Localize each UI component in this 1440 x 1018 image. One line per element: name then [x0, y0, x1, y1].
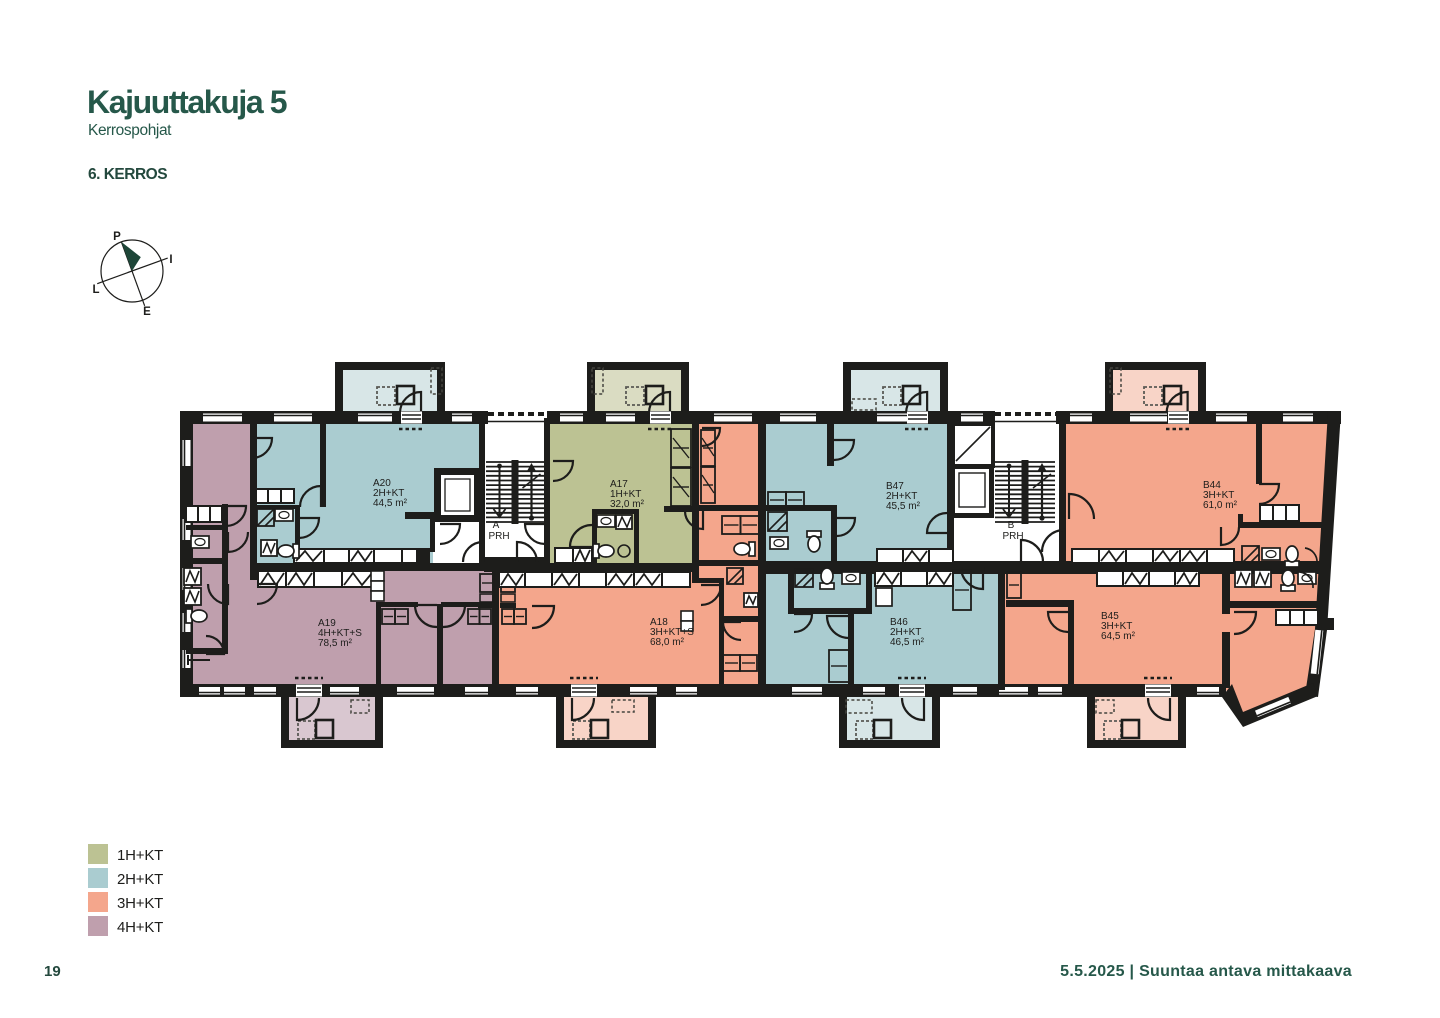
svg-text:L: L	[92, 284, 99, 296]
svg-text:I: I	[169, 254, 172, 266]
svg-text:Kerrospohjat: Kerrospohjat	[88, 122, 172, 139]
svg-text:5.5.2025 | Suuntaa antava mitt: 5.5.2025 | Suuntaa antava mittakaava	[1060, 963, 1352, 980]
svg-text:E: E	[143, 306, 151, 318]
svg-text:1H+KT: 1H+KT	[117, 847, 163, 864]
svg-text:46,5 m²: 46,5 m²	[890, 637, 925, 648]
svg-text:A: A	[493, 520, 500, 531]
svg-text:44,5 m²: 44,5 m²	[373, 498, 408, 509]
svg-text:78,5 m²: 78,5 m²	[318, 638, 353, 649]
svg-text:61,0 m²: 61,0 m²	[1203, 500, 1238, 511]
svg-text:3H+KT: 3H+KT	[117, 895, 163, 912]
svg-text:2H+KT: 2H+KT	[117, 871, 163, 888]
svg-text:PRH: PRH	[488, 531, 509, 542]
svg-text:45,5 m²: 45,5 m²	[886, 501, 921, 512]
svg-text:68,0 m²: 68,0 m²	[650, 637, 685, 648]
svg-text:32,0 m²: 32,0 m²	[610, 499, 645, 510]
svg-text:4H+KT: 4H+KT	[117, 919, 163, 936]
svg-text:6. KERROS: 6. KERROS	[88, 166, 167, 183]
svg-text:Kajuuttakuja 5: Kajuuttakuja 5	[87, 84, 287, 120]
svg-text:19: 19	[44, 963, 61, 980]
svg-text:P: P	[113, 231, 121, 243]
svg-text:PRH: PRH	[1002, 531, 1023, 542]
svg-text:B: B	[1008, 520, 1015, 531]
svg-text:64,5 m²: 64,5 m²	[1101, 631, 1136, 642]
